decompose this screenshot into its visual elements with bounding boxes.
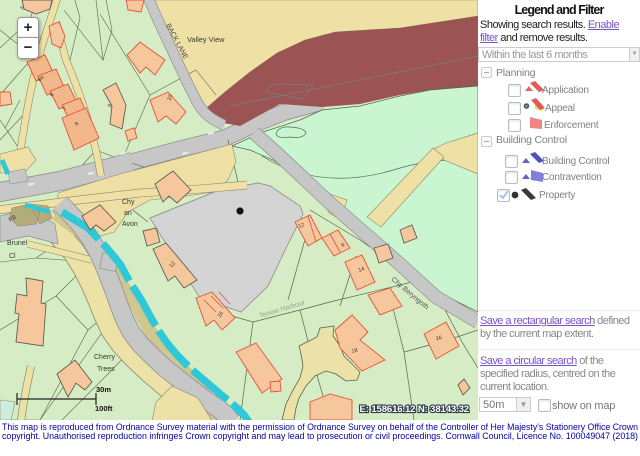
svg-text:Cherry: Cherry (94, 354, 116, 361)
svg-text:Avon: Avon (122, 221, 138, 228)
svg-text:E: 158616.12 N: 38143.32: E: 158616.12 N: 38143.32 (360, 404, 469, 415)
svg-text:Trees: Trees (97, 366, 115, 373)
svg-text:100ft: 100ft (95, 404, 113, 413)
svg-text:an: an (124, 210, 132, 217)
svg-text:Brunel: Brunel (7, 240, 28, 247)
svg-text:Chy: Chy (122, 199, 135, 206)
svg-text:Valley View: Valley View (187, 35, 225, 44)
svg-text:30m: 30m (96, 385, 111, 394)
svg-text:Cl: Cl (9, 253, 16, 260)
svg-text:16: 16 (435, 335, 442, 342)
